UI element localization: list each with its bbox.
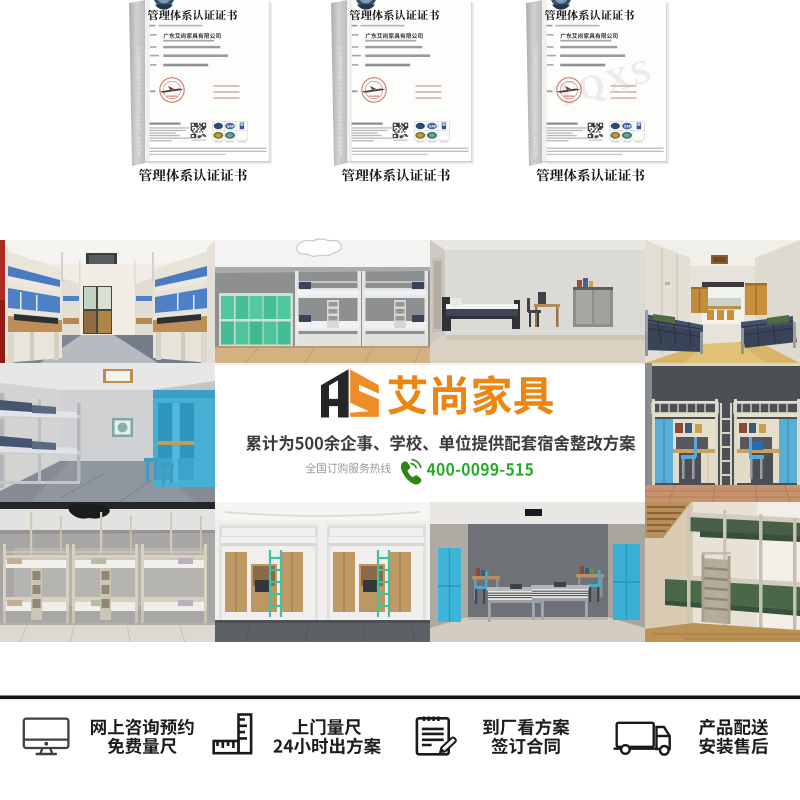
svg-text:INGEER CERTIFICATION ASSESSMEN: INGEER CERTIFICATION ASSESSMENT S	[534, 46, 540, 157]
svg-text:SAP: SAP	[624, 125, 632, 129]
svg-text:SAP: SAP	[227, 125, 235, 129]
svg-text:SAP: SAP	[429, 125, 437, 129]
svg-text:INGEER CERTIFICATION ASSESSMEN: INGEER CERTIFICATION ASSESSMENT S	[339, 46, 345, 157]
svg-text:INGEER CERTIFICATION ASSESSMEN: INGEER CERTIFICATION ASSESSMENT S	[137, 46, 143, 157]
